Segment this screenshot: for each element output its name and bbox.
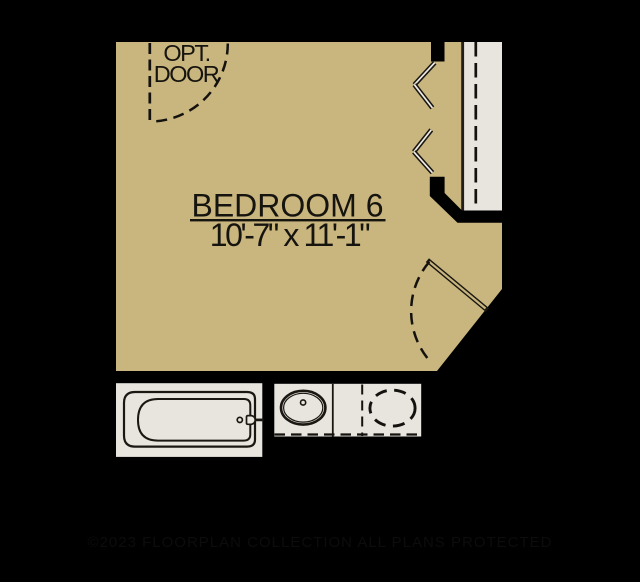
- svg-text:©2023 FLOORPLAN COLLECTION AL: ©2023 FLOORPLAN COLLECTION ALL PLANS PRO…: [88, 534, 553, 551]
- svg-text:DOOR: DOOR: [154, 61, 219, 87]
- svg-text:10'-7" x 11'-1": 10'-7" x 11'-1": [210, 217, 369, 253]
